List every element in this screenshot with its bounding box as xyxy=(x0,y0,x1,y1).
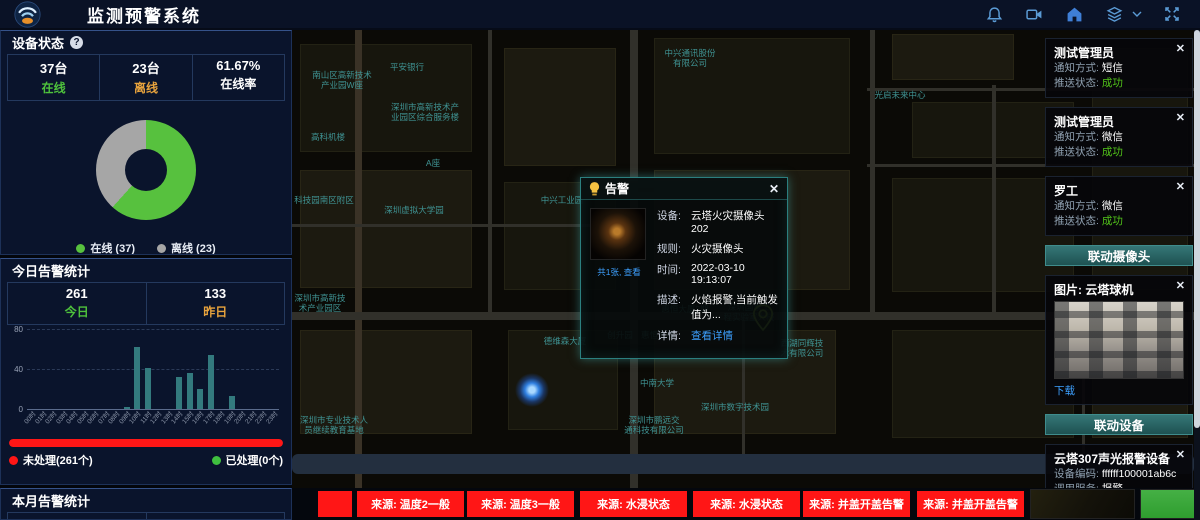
alert-popup-title: 告警 xyxy=(605,180,629,197)
today-alerts-bar-chart: 80 40 0 00时01时02时03时04时05时06时07时08时09时10… xyxy=(11,329,281,435)
unhandled-progress-fill xyxy=(9,439,283,447)
popup-field-value: 火焰报警,当前触发值为... xyxy=(691,292,779,322)
bar xyxy=(176,377,182,409)
card-row-label: 推送状态: xyxy=(1054,214,1099,229)
device-stat-value: 37台 xyxy=(8,58,99,77)
y-tick-80: 80 xyxy=(11,325,23,334)
today-stat-label: 昨日 xyxy=(147,303,285,320)
bar xyxy=(134,347,140,409)
unhandled-label: 未处理(261个) xyxy=(23,452,93,468)
ticker-alert-item[interactable]: 来源: 并盖开盖告警 xyxy=(917,491,1024,517)
card-title: 测试管理员 xyxy=(1054,45,1184,61)
card-row-label: 通知方式: xyxy=(1054,199,1099,214)
bar-slot xyxy=(269,329,280,409)
bar-slot xyxy=(101,329,112,409)
device-status-stats: 37台在线23台离线61.67%在线率 xyxy=(7,54,285,101)
alarm-lamp-icon xyxy=(589,182,600,196)
today-stat-value: 133 xyxy=(147,286,285,301)
close-icon[interactable]: ✕ xyxy=(1176,113,1185,124)
ticker-alert-item[interactable]: 来源: 水浸状态 xyxy=(693,491,800,517)
legend-label: 在线 (37) xyxy=(90,240,135,255)
alert-progress-bar xyxy=(9,439,283,447)
card-row-value: 微信 xyxy=(1102,199,1123,214)
help-icon[interactable]: ? xyxy=(70,36,83,49)
popup-field-value: 火灾摄像头 xyxy=(691,241,744,256)
card-row-value: 短信 xyxy=(1102,61,1123,76)
popup-field-value: 2022-03-10 19:13:07 xyxy=(691,262,779,286)
bar-slot xyxy=(38,329,49,409)
card-row-value: ffffff100001ab6c xyxy=(1102,467,1176,482)
map-place-label: 深圳市专业技术人 员继续教育基地 xyxy=(300,415,368,435)
month-alerts-title: 本月告警统计 xyxy=(12,491,90,510)
bar-slot xyxy=(216,329,227,409)
page-title: 监测预警系统 xyxy=(87,2,201,27)
map-place-label: A座 xyxy=(426,158,440,168)
device-status-donut-wrap xyxy=(1,101,291,238)
bar-slot xyxy=(69,329,80,409)
card-row-label: 推送状态: xyxy=(1054,145,1099,160)
chevron-down-icon[interactable] xyxy=(1132,9,1142,19)
month-stat-cell: 763 xyxy=(8,513,147,520)
popup-field-row: 规则:火灾摄像头 xyxy=(657,241,779,256)
legend-dot-icon xyxy=(76,244,85,253)
unhandled-legend-item: 未处理(261个) xyxy=(9,452,93,468)
device-stat-label: 在线率 xyxy=(193,75,284,92)
bell-icon[interactable] xyxy=(986,5,1004,23)
device-stat-cell: 61.67%在线率 xyxy=(193,55,284,100)
bar-slot xyxy=(27,329,38,409)
bar-slot xyxy=(185,329,196,409)
month-stat-cell: 1146 xyxy=(147,513,285,520)
card-row: 设备编码:ffffff100001ab6c xyxy=(1054,467,1184,482)
popup-field-label: 时间: xyxy=(657,262,691,286)
card-row-value: 成功 xyxy=(1102,76,1123,91)
bar-slot xyxy=(132,329,143,409)
bar-slot xyxy=(258,329,269,409)
bar-slot xyxy=(48,329,59,409)
layers-icon[interactable] xyxy=(1106,5,1124,23)
home-icon[interactable] xyxy=(1066,5,1084,23)
progress-legend: 未处理(261个) 已处理(0个) xyxy=(9,452,283,468)
snapshot-view-link[interactable]: 共1张, 查看 xyxy=(590,266,648,278)
device-stat-label: 在线 xyxy=(8,79,99,96)
today-alerts-title: 今日告警统计 xyxy=(12,261,90,280)
bar-chart-x-labels: 00时01时02时03时04时05时06时07时08时09时10时11时12时1… xyxy=(27,409,279,435)
right-sidebar: 测试管理员✕通知方式:短信推送状态:成功测试管理员✕通知方式:微信推送状态:成功… xyxy=(1045,30,1193,488)
alert-snapshot-column: 共1张, 查看 xyxy=(590,208,648,349)
month-stat-value: 763 xyxy=(8,516,146,520)
device-stat-value: 23台 xyxy=(100,58,191,77)
popup-field-row: 设备:云塔火灾摄像头202 xyxy=(657,208,779,235)
alert-snapshot-image[interactable] xyxy=(590,208,646,260)
monitoring-dashboard: 监测预警系统 xyxy=(0,0,1200,520)
handled-dot-icon xyxy=(212,456,221,465)
legend-dot-icon xyxy=(157,244,166,253)
ticker-video-thumbnail[interactable] xyxy=(1030,489,1135,519)
card-title: 罗工 xyxy=(1054,183,1184,199)
y-tick-40: 40 xyxy=(11,365,23,374)
bar-slot xyxy=(164,329,175,409)
card-row-label: 推送状态: xyxy=(1054,76,1099,91)
device-status-donut-chart xyxy=(96,120,196,220)
card-row: 通知方式:微信 xyxy=(1054,130,1184,145)
device-status-panel: 设备状态 ? 37台在线23台离线61.67%在线率 在线 (37)离线 (23… xyxy=(0,30,292,255)
x-tick-label: 23时 xyxy=(269,409,280,435)
card-row-label: 通知方式: xyxy=(1054,61,1099,76)
alert-popup-header: 告警 ✕ xyxy=(581,178,787,200)
bar-slot xyxy=(206,329,217,409)
bar-slot xyxy=(174,329,185,409)
bar-slot xyxy=(227,329,238,409)
bar-slot xyxy=(122,329,133,409)
popup-field-row: 时间:2022-03-10 19:13:07 xyxy=(657,262,779,286)
video-camera-icon[interactable] xyxy=(1026,5,1044,23)
app-logo-icon xyxy=(14,1,41,28)
device-status-legend: 在线 (37)离线 (23) xyxy=(1,238,291,255)
alert-popup: 告警 ✕ 共1张, 查看 设备:云塔火灾摄像头202规则:火灾摄像头时间:202… xyxy=(580,177,788,359)
bar xyxy=(145,368,151,409)
ticker-alert-item[interactable]: 来源: 温度3一般 xyxy=(467,491,574,517)
linked-devices-header[interactable]: 联动设备 xyxy=(1045,414,1193,435)
map-place-label: 光启未来中心 xyxy=(874,90,925,100)
download-link[interactable]: 下载 xyxy=(1054,383,1184,398)
bar xyxy=(187,373,193,409)
notification-card: 测试管理员✕通知方式:微信推送状态:成功 xyxy=(1045,107,1193,167)
ticker-green-thumbnail[interactable] xyxy=(1140,489,1197,519)
popup-field-row: 描述:火焰报警,当前触发值为... xyxy=(657,292,779,322)
bar-slot xyxy=(195,329,206,409)
card-title: 图片: 云塔球机 xyxy=(1054,282,1184,298)
month-alerts-stats: 7631146 xyxy=(7,512,285,520)
device-stat-value: 61.67% xyxy=(193,58,284,73)
bar xyxy=(208,355,214,409)
card-row: 通知方式:短信 xyxy=(1054,61,1184,76)
app-header: 监测预警系统 xyxy=(0,0,1200,30)
scrollbar-thumb[interactable] xyxy=(1194,30,1200,428)
alert-ticker-bar: 来源: 温度2一般来源: 温度3一般来源: 水浸状态来源: 水浸状态来源: 并盖… xyxy=(292,488,1200,520)
card-row-value: 成功 xyxy=(1102,214,1123,229)
card-title: 测试管理员 xyxy=(1054,114,1184,130)
today-alerts-stats: 261今日133昨日 xyxy=(7,282,285,325)
map-place-label: 深圳市鹏远交 通科技有限公司 xyxy=(624,415,684,435)
handled-legend-item: 已处理(0个) xyxy=(212,452,283,468)
map-place-label: 中南大学 xyxy=(640,378,674,388)
bar-slot xyxy=(153,329,164,409)
handled-label: 已处理(0个) xyxy=(226,452,283,468)
close-icon[interactable]: ✕ xyxy=(1176,450,1185,461)
card-row-label: 通知方式: xyxy=(1054,130,1099,145)
card-row-value: 微信 xyxy=(1102,130,1123,145)
ticker-alert-item[interactable]: 来源: 温度2一般 xyxy=(357,491,464,517)
map-place-label: 深圳市高新技 术产业园区 xyxy=(294,293,345,313)
today-stat-value: 261 xyxy=(8,286,146,301)
popup-field-label: 详情: xyxy=(657,328,691,343)
card-row-label: 设备编码: xyxy=(1054,467,1099,482)
unhandled-dot-icon xyxy=(9,456,18,465)
device-stat-label: 离线 xyxy=(100,79,191,96)
today-stat-cell: 261今日 xyxy=(8,283,147,324)
card-row-value: 成功 xyxy=(1102,145,1123,160)
month-alerts-panel: 本月告警统计 7631146 xyxy=(0,488,292,520)
legend-label: 离线 (23) xyxy=(171,240,216,255)
linked-device-card: 云塔307声光报警设备✕设备编码:ffffff100001ab6c调用服务:报警… xyxy=(1045,444,1193,488)
bar-slot xyxy=(90,329,101,409)
header-icons xyxy=(986,5,1182,23)
map-place-label: 中兴工业园 xyxy=(541,195,584,205)
device-stat-cell: 37台在线 xyxy=(8,55,100,100)
popup-field-row: 详情:查看详情 xyxy=(657,328,779,343)
bar-slot xyxy=(59,329,70,409)
map-place-label: 深圳市数字技术园 xyxy=(701,402,769,412)
today-alerts-title-row: 今日告警统计 xyxy=(1,259,291,282)
close-icon[interactable]: ✕ xyxy=(1176,182,1185,193)
map-place-label: 科技园南区附区 xyxy=(294,195,354,205)
linked-camera-header[interactable]: 联动摄像头 xyxy=(1045,245,1193,266)
bar-slot xyxy=(143,329,154,409)
bar-slot xyxy=(237,329,248,409)
bar xyxy=(197,389,203,409)
bar-slot xyxy=(80,329,91,409)
card-title: 云塔307声光报警设备 xyxy=(1054,451,1184,467)
vertical-scrollbar[interactable] xyxy=(1194,30,1200,520)
expand-icon[interactable] xyxy=(1164,5,1182,23)
popup-field-label: 描述: xyxy=(657,292,691,322)
ticker-alert-item[interactable]: 来源: 并盖开盖告警 xyxy=(803,491,910,517)
card-row: 通知方式:微信 xyxy=(1054,199,1184,214)
bar-chart-plot: 80 40 0 xyxy=(27,329,279,409)
left-sidebar: 设备状态 ? 37台在线23台离线61.67%在线率 在线 (37)离线 (23… xyxy=(0,30,292,520)
camera-snapshot-card: 图片: 云塔球机✕下载 xyxy=(1045,275,1193,405)
card-row: 推送状态:成功 xyxy=(1054,76,1184,91)
month-stat-value: 1146 xyxy=(147,516,285,520)
today-stat-label: 今日 xyxy=(8,303,146,320)
device-stat-cell: 23台离线 xyxy=(100,55,192,100)
notification-card: 罗工✕通知方式:微信推送状态:成功 xyxy=(1045,176,1193,236)
close-icon[interactable]: ✕ xyxy=(769,182,779,196)
donut-legend-item: 在线 (37) xyxy=(76,240,135,255)
bar-slot xyxy=(248,329,259,409)
map-place-label: 深圳市高新技术产 业园区综合服务楼 xyxy=(391,102,459,122)
card-row: 推送状态:成功 xyxy=(1054,145,1184,160)
ticker-stub-block[interactable] xyxy=(318,491,352,517)
device-status-title-row: 设备状态 ? xyxy=(1,31,291,54)
notification-card: 测试管理员✕通知方式:短信推送状态:成功 xyxy=(1045,38,1193,98)
map-place-label: 深圳虚拟大学园 xyxy=(384,205,444,215)
map-place-label: 中兴通讯股份 有限公司 xyxy=(664,48,715,68)
donut-legend-item: 离线 (23) xyxy=(157,240,216,255)
device-location-dot[interactable] xyxy=(515,373,549,407)
y-tick-0: 0 xyxy=(11,405,23,414)
map-place-label: 平安银行 xyxy=(390,62,424,72)
map-place-label: 高科机楼 xyxy=(311,132,345,142)
alert-popup-fields: 设备:云塔火灾摄像头202规则:火灾摄像头时间:2022-03-10 19:13… xyxy=(657,208,779,349)
bar-slot xyxy=(111,329,122,409)
device-status-title: 设备状态 xyxy=(12,33,64,52)
month-alerts-title-row: 本月告警统计 xyxy=(1,489,291,512)
today-stat-cell: 133昨日 xyxy=(147,283,285,324)
popup-field-label: 规则: xyxy=(657,241,691,256)
camera-snapshot-photo[interactable] xyxy=(1054,301,1184,379)
view-details-link[interactable]: 查看详情 xyxy=(691,328,733,343)
bar xyxy=(229,396,235,409)
map-place-label: 南山区高新技术 产业园W座 xyxy=(312,70,372,90)
today-alerts-panel: 今日告警统计 261今日133昨日 80 40 0 00时01时02时03时04… xyxy=(0,258,292,485)
alert-popup-body: 共1张, 查看 设备:云塔火灾摄像头202规则:火灾摄像头时间:2022-03-… xyxy=(581,200,787,358)
popup-field-value: 云塔火灾摄像头202 xyxy=(691,208,779,235)
close-icon[interactable]: ✕ xyxy=(1176,44,1185,55)
bar-series xyxy=(27,329,279,409)
card-row: 推送状态:成功 xyxy=(1054,214,1184,229)
ticker-alert-item[interactable]: 来源: 水浸状态 xyxy=(580,491,687,517)
close-icon[interactable]: ✕ xyxy=(1176,281,1185,292)
popup-field-label: 设备: xyxy=(657,208,691,235)
